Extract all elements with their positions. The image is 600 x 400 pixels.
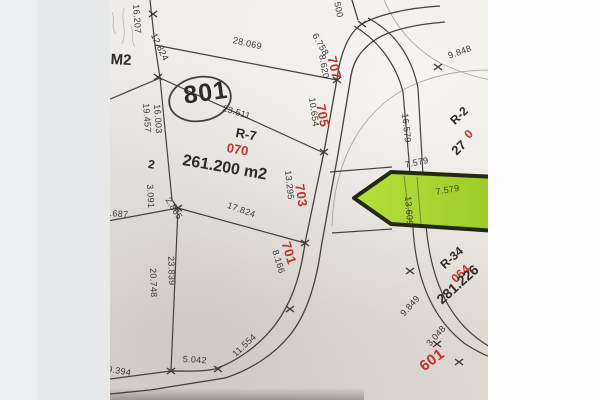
right-letterbox (488, 0, 600, 400)
block-label-m2: M2 (110, 52, 132, 68)
highlight-arrow-marker (354, 172, 497, 231)
dimension-label: 13.609 (403, 196, 414, 226)
paper-edge-shadow (104, 388, 364, 400)
dimension-label: 20.748 (148, 268, 158, 298)
lot-2-label: 2 (147, 158, 155, 171)
lot-801-label: 801 (182, 78, 230, 109)
dimension-label: 16.003 (152, 104, 163, 134)
parcel-r7-id: 070 (226, 141, 250, 158)
left-letterbox (0, 0, 37, 400)
dimension-label: 19.457 (141, 103, 152, 133)
left-margin (37, 0, 110, 400)
dimension-label: 3.091 (145, 184, 155, 208)
dimension-label: 16.207 (131, 4, 142, 34)
road-number-703: 703 (293, 183, 309, 208)
dimension-label: 23.839 (166, 256, 176, 286)
cadastral-plat-photo: 500 6.758 8.620 16.207 12.824 28.069 23.… (0, 0, 600, 400)
dimension-label: 5.042 (183, 355, 207, 365)
dimension-label: 500 (332, 1, 344, 18)
road-number-705: 705 (314, 103, 331, 128)
dimension-label: 16.579 (400, 113, 412, 143)
parcel-r7-code: R-7 (235, 126, 258, 142)
dimension-label: .687 (109, 209, 128, 220)
